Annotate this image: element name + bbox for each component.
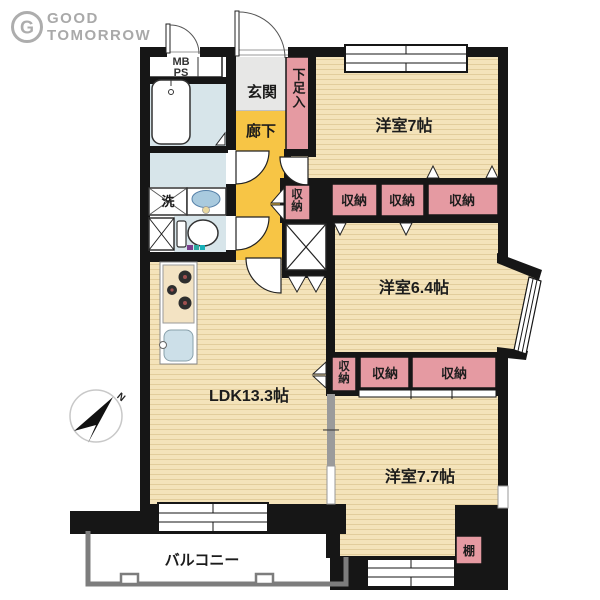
label-closet: 収納 bbox=[341, 193, 367, 208]
label-bedroom64: 洋室6.4帖 bbox=[379, 278, 449, 297]
balcony-notch bbox=[256, 574, 273, 584]
label-closet: 収納 bbox=[449, 193, 475, 208]
floor-plan: N G GOOD TOMORROW MB PS 玄関 下足入 廊下 洋室7帖 収… bbox=[0, 0, 600, 600]
label-balcony: バルコニー bbox=[165, 552, 240, 569]
label-closet-row1-vertical: 収納 bbox=[291, 188, 303, 213]
kitchen bbox=[160, 262, 198, 364]
label-shelf: 棚 bbox=[463, 543, 475, 558]
kitchen-sink bbox=[164, 330, 193, 361]
sliding-partition-opening bbox=[327, 466, 335, 504]
ldk-balcony-window bbox=[158, 503, 268, 532]
label-ps: PS bbox=[174, 67, 189, 79]
label-hallway: 廊下 bbox=[246, 122, 276, 140]
bedroom7-window bbox=[345, 45, 467, 72]
brand-line2: TOMORROW bbox=[47, 27, 151, 44]
meterbox-door-leaf bbox=[166, 24, 170, 53]
label-ldk: LDK13.3帖 bbox=[209, 386, 289, 405]
brand-line1: GOOD bbox=[47, 10, 99, 27]
entrance-door-leaf bbox=[235, 11, 239, 56]
bedroom77-window bbox=[367, 559, 455, 587]
washbasin bbox=[192, 191, 220, 208]
label-bedroom7: 洋室7帖 bbox=[376, 116, 433, 135]
closet-row2-sliding-doors bbox=[359, 390, 496, 397]
bedroom77-side-window bbox=[498, 486, 508, 508]
balcony-notch bbox=[121, 574, 138, 584]
label-entrance: 玄関 bbox=[247, 83, 277, 101]
label-shoe-storage: 下足入 bbox=[292, 67, 306, 109]
label-closet: 収納 bbox=[389, 193, 415, 208]
label-closet-row2-vertical: 収納 bbox=[338, 360, 350, 385]
sink-faucet bbox=[160, 342, 167, 349]
logo-monogram: G bbox=[20, 18, 34, 38]
washroom-floor bbox=[148, 153, 226, 187]
label-bedroom77: 洋室7.7帖 bbox=[385, 467, 455, 486]
label-closet: 収納 bbox=[441, 366, 467, 381]
label-laundry: 洗 bbox=[161, 194, 174, 209]
bathtub-faucet bbox=[169, 90, 174, 95]
label-closet: 収納 bbox=[372, 366, 398, 381]
